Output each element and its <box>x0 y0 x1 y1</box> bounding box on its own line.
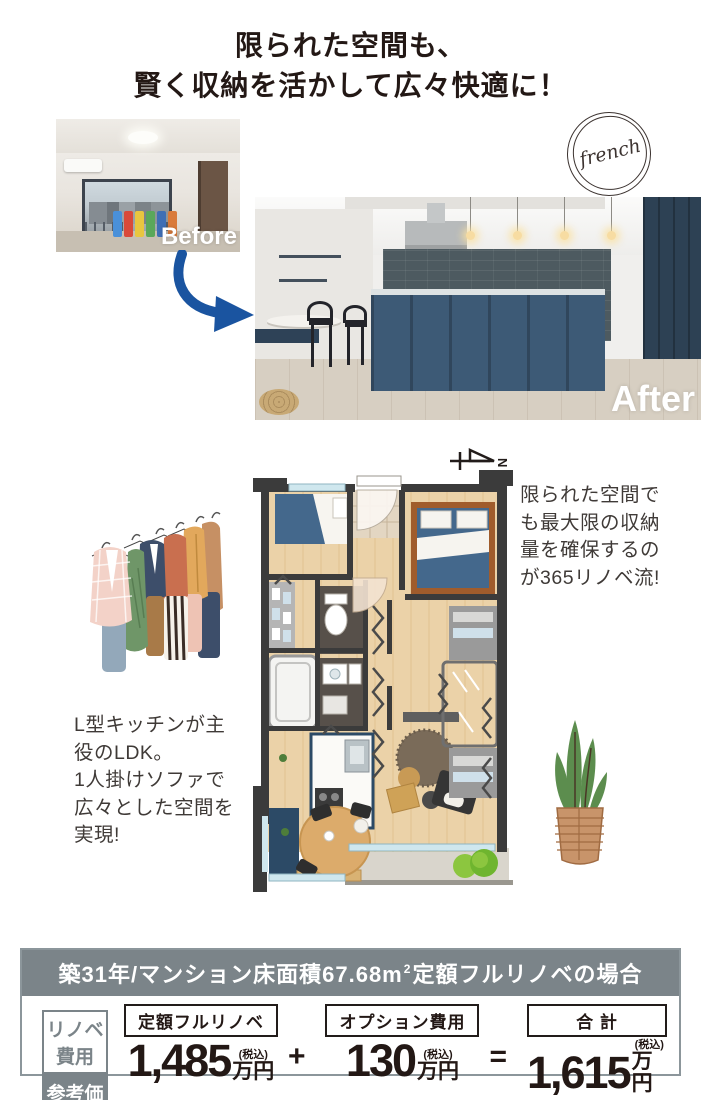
flat-renovation-price: 定額フルリノベ 1,485 (税込) 万円 <box>124 1004 278 1083</box>
chair-leg <box>329 325 332 367</box>
pendant-light <box>517 197 518 233</box>
title-line-2: 賢く収納を活かして広々快適に！ <box>0 66 701 106</box>
french-stamp: french <box>563 108 655 200</box>
wall-shelf <box>279 255 341 258</box>
kitchen-note-line: L型キッチンが主 <box>74 712 279 740</box>
total-label: 合 計 <box>527 1004 667 1037</box>
blue-cabinet-wall <box>643 197 701 365</box>
option-cost-amount-line: 130 (税込) 万円 <box>346 1039 459 1083</box>
kitchen-note-line: 実現! <box>74 822 279 850</box>
page-title: 限られた空間も、 賢く収納を活かして広々快適に！ <box>0 26 701 106</box>
range-hood-duct <box>427 203 445 223</box>
dining-bench <box>255 329 319 343</box>
price-reference-label: リノベ費用 参考価格 <box>42 1010 108 1100</box>
flat-renovation-amount-line: 1,485 (税込) 万円 <box>128 1039 275 1083</box>
kitchen-note-line: 役のLDK。 <box>74 740 279 768</box>
kitchen-note-line: 広々とした空間を <box>74 795 279 823</box>
reference-price-label: 参考価格 <box>42 1074 108 1100</box>
pricing-header-tail: 定額フルリノベの場合 <box>412 957 642 989</box>
floor-plan <box>253 466 513 892</box>
ceiling-light <box>128 131 158 144</box>
potted-plant-illustration <box>541 708 619 866</box>
square-meter-sup: 2 <box>404 962 412 976</box>
option-cost-amount: 130 <box>346 1039 415 1083</box>
after-photo: After <box>255 197 701 420</box>
after-label: After <box>611 378 695 420</box>
renovation-flyer: 限られた空間も、 賢く収納を活かして広々快適に！ Before french <box>0 0 701 1100</box>
total-amount-line: 1,615 (税込) 万円 <box>527 1039 667 1095</box>
option-cost-label: オプション費用 <box>325 1004 479 1037</box>
pricing-header: 築31年/マンション床面積67.68m2定額フルリノベの場合 <box>22 950 679 996</box>
pendant-light <box>564 197 565 233</box>
before-label: Before <box>161 223 237 251</box>
unit-manyen: 万円 <box>632 1051 667 1095</box>
blue-kitchen-island <box>371 289 605 391</box>
range-hood <box>405 221 467 249</box>
total-amount: 1,615 <box>527 1051 630 1095</box>
chair-leg <box>311 325 314 367</box>
kitchen-note: L型キッチンが主 役のLDK。 1人掛けソファで 広々とした空間を 実現! <box>74 712 279 850</box>
air-conditioner <box>64 159 102 172</box>
before-photo: Before <box>56 119 240 252</box>
hanging-clothes-illustration <box>80 508 225 683</box>
ceiling-beam <box>345 197 605 209</box>
renovation-cost-label: リノベ費用 <box>42 1010 108 1074</box>
chair-leg <box>347 327 350 365</box>
equals-sign: = <box>489 1040 507 1074</box>
storage-note-line: 限られた空間で <box>520 482 700 510</box>
pricing-header-text: 築31年/マンション床面積67.68m <box>59 957 403 989</box>
title-line-1: 限られた空間も、 <box>0 26 701 66</box>
pricing-section: 築31年/マンション床面積67.68m2定額フルリノベの場合 リノベ費用 参考価… <box>20 948 681 1076</box>
pricing-body: リノベ費用 参考価格 定額フルリノベ 1,485 (税込) 万円 + オプション… <box>22 996 679 1100</box>
storage-note: 限られた空間で も最大限の収納 量を確保するの が365リノベ流! <box>520 482 700 592</box>
flat-renovation-label: 定額フルリノベ <box>124 1004 278 1037</box>
wall-shelf <box>279 279 327 282</box>
storage-note-line: も最大限の収納 <box>520 510 700 538</box>
french-stamp-inner-circle: french <box>569 112 650 193</box>
option-cost-price: オプション費用 130 (税込) 万円 <box>325 1004 479 1083</box>
storage-note-line: が365リノベ流! <box>520 565 700 593</box>
flat-renovation-amount: 1,485 <box>128 1039 231 1083</box>
pendant-light <box>611 197 612 233</box>
rattan-stool <box>259 389 299 415</box>
plus-sign: + <box>288 1040 306 1074</box>
french-stamp-text: french <box>577 135 643 171</box>
before-to-after-arrow-icon <box>166 250 258 334</box>
kitchen-note-line: 1人掛けソファで <box>74 767 279 795</box>
dining-chair <box>307 301 333 321</box>
chair-leg <box>361 327 364 365</box>
total-price: 合 計 1,615 (税込) 万円 <box>527 1004 667 1095</box>
unit-manyen: 万円 <box>232 1061 274 1083</box>
storage-note-line: 量を確保するの <box>520 537 700 565</box>
unit-manyen: 万円 <box>417 1061 459 1083</box>
pendant-light <box>470 197 471 233</box>
